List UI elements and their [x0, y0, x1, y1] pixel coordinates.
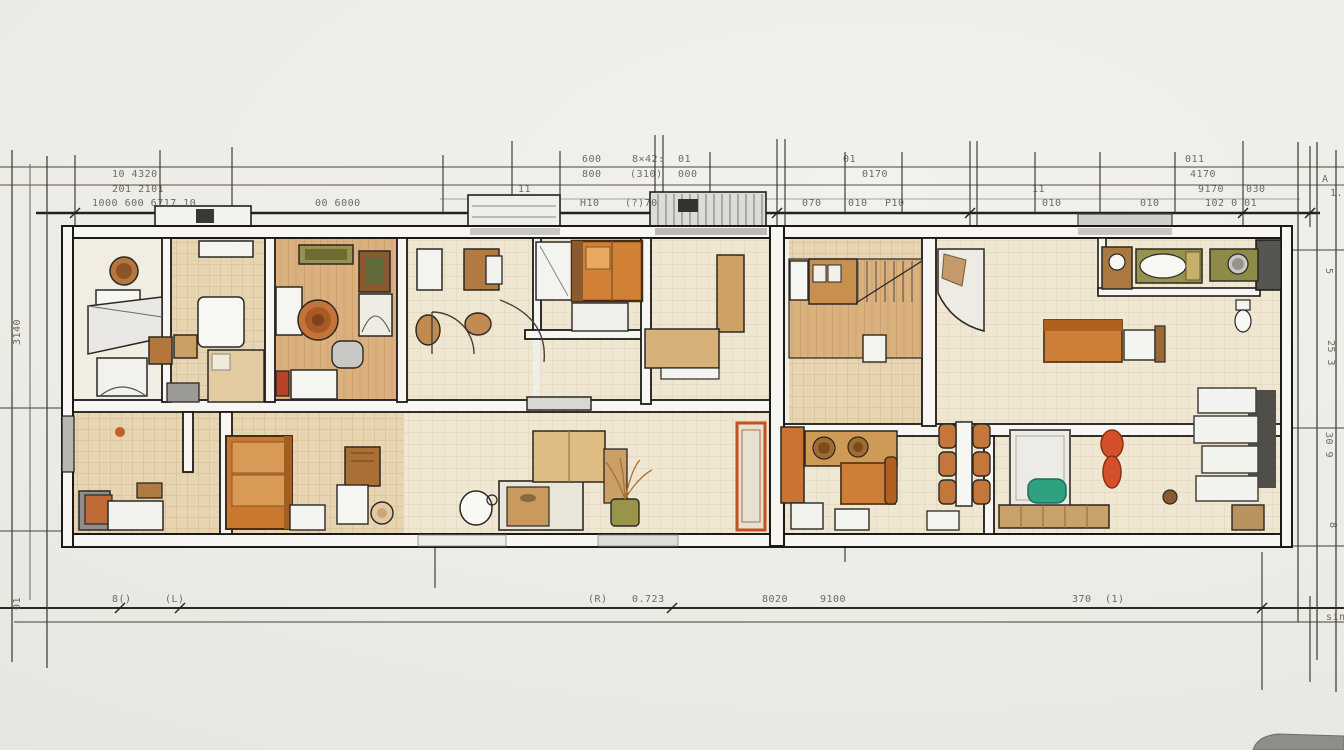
side-table-white	[835, 509, 869, 530]
dimension-label: 0170	[862, 169, 888, 180]
wardrobe-tan	[717, 255, 744, 332]
corner-gray-blob	[1253, 734, 1344, 750]
dimension-label: 8	[1327, 522, 1338, 529]
dimension-label: 9170	[1198, 184, 1224, 195]
gray-corner-piece	[167, 383, 199, 402]
sofa-side-table	[1124, 330, 1155, 360]
sculpt-chair-bottom	[1103, 456, 1121, 488]
sofa-orange-upper-back	[1044, 320, 1122, 331]
dimension-label: P10	[885, 198, 905, 209]
dimension-label: 600	[582, 154, 602, 165]
dimension-label: 1.	[1330, 188, 1343, 199]
dimension-label: 25 3	[1325, 340, 1336, 366]
dimension-label: 10 4320	[112, 169, 158, 180]
dim-verticals-right	[1298, 142, 1336, 692]
washer-drum-inner	[1232, 258, 1244, 270]
blueprint-canvas: 6008×42:010101110 4320800(310)0000170417…	[0, 0, 1344, 750]
bathtub-lid	[1186, 252, 1200, 280]
white-bed-wood-room	[276, 287, 302, 335]
threshold-2	[598, 535, 678, 546]
dimension-label: 5	[1323, 268, 1334, 275]
sofa-end-wood	[1155, 326, 1165, 362]
dimension-label: 11	[518, 184, 531, 195]
door-mark-top-left	[196, 209, 214, 223]
dimension-label: 070	[802, 198, 822, 209]
teal-cushion	[1028, 479, 1066, 503]
wall-v3	[397, 238, 407, 402]
wall-left	[62, 226, 73, 547]
canister-white	[863, 335, 886, 362]
dimension-label: 4170	[1190, 169, 1216, 180]
wall-lower-v1	[183, 412, 193, 472]
dimension-label: (1)	[1105, 594, 1125, 605]
sofa-small-arm	[885, 457, 897, 504]
dimension-label: H10	[580, 198, 600, 209]
ottoman-white	[290, 505, 325, 530]
white-unit	[337, 485, 368, 524]
shelf-bedroom	[199, 241, 253, 257]
dining-chair-1	[939, 424, 956, 448]
orange-dot	[115, 427, 125, 437]
dimension-label: (?)70	[625, 198, 658, 209]
plant-pot	[611, 499, 639, 526]
dimension-label: 201 2101	[112, 184, 164, 195]
dimension-label: 11	[1032, 184, 1045, 195]
hall-closet-white	[417, 249, 442, 290]
wicker-basket-inner	[116, 263, 132, 279]
dimension-label: 01	[678, 154, 691, 165]
dining-chair-3	[939, 480, 956, 504]
dimension-label: 3140	[12, 319, 23, 345]
wall-v2	[265, 238, 275, 402]
coffee-table-small	[137, 483, 162, 498]
dimension-label: (310)	[630, 169, 663, 180]
bath-sink	[1109, 254, 1125, 270]
mug-white	[460, 491, 492, 525]
dimension-label: 8×42:	[632, 154, 665, 165]
round-rug-core	[312, 314, 324, 326]
stove-door-1	[813, 265, 826, 282]
dimension-label: 8()	[112, 594, 132, 605]
footstool-white	[791, 503, 823, 529]
window-left-lower	[62, 416, 74, 472]
dimension-label: 102 0 01	[1205, 198, 1257, 209]
bed-tan-pillow	[212, 354, 230, 370]
dining-chair-4	[973, 424, 990, 448]
arch-niche	[359, 294, 392, 336]
bathtub-basin	[1140, 254, 1186, 278]
dresser-orange	[149, 337, 172, 364]
basket-1-inner	[818, 442, 830, 454]
bed-orange-headboard	[572, 241, 583, 301]
shelf-base-wood	[1232, 505, 1264, 530]
dimension-label: (L)	[165, 594, 185, 605]
threshold-1	[418, 535, 506, 546]
dimension-label: 030	[1246, 184, 1266, 195]
shelf-tier-4	[1196, 476, 1258, 501]
dining-chair-2	[939, 452, 956, 476]
dimension-label: (R)	[588, 594, 608, 605]
dim-ticks-bottom	[435, 546, 1310, 690]
wall-right	[1281, 226, 1292, 547]
dining-chair-5	[973, 452, 990, 476]
wall-dark-corner	[1256, 240, 1281, 290]
wall-v6	[922, 238, 936, 426]
window-planter-inner	[305, 249, 347, 260]
toilet-tank	[1236, 300, 1250, 310]
basket-2-inner	[853, 442, 863, 452]
shelf-tier-1	[1198, 388, 1256, 413]
hatched-porch	[650, 192, 766, 228]
dimension-label: 8020	[762, 594, 788, 605]
dimension-label: sin	[1326, 612, 1344, 623]
toilet-bowl	[1235, 310, 1251, 332]
sofa-cushion-2	[232, 475, 286, 506]
counter-tan	[645, 329, 719, 368]
wall-frame-art	[527, 397, 591, 410]
shelf-tier-2	[1194, 416, 1258, 443]
red-item	[276, 371, 289, 396]
dim-horiz-left	[0, 408, 62, 531]
wall-v1	[162, 238, 171, 402]
shelf-tier-3	[1202, 446, 1258, 473]
dining-table	[956, 422, 972, 506]
bed-orange-pillow	[586, 247, 610, 269]
window-strip-3	[1078, 228, 1172, 235]
bench-wood	[999, 505, 1109, 528]
dimension-label: 00 6000	[315, 198, 361, 209]
dimension-label: 01	[12, 597, 23, 610]
dimension-label: 010	[848, 198, 868, 209]
fridge-white	[790, 261, 808, 300]
wicker-stool-hall	[465, 313, 491, 335]
dimension-label: 010	[1140, 198, 1160, 209]
leaning-art-frame	[737, 423, 765, 530]
dimension-label: 370	[1072, 594, 1092, 605]
dimension-label: 0.723	[632, 594, 665, 605]
floor-plan-drawing: 6008×42:010101110 4320800(310)0000170417…	[0, 0, 1344, 750]
dimension-label: 1000 600 6717 10	[92, 198, 196, 209]
white-bed-lower	[291, 370, 337, 399]
cabinet-wood-door	[507, 487, 549, 526]
vestibule-box	[468, 195, 560, 228]
sofa-cushion-1	[232, 442, 286, 473]
bed-step-white	[572, 303, 628, 331]
dining-white-piece	[927, 511, 959, 530]
sofa-white-l	[108, 501, 163, 530]
counter-shelf-white	[661, 368, 719, 379]
dimension-label: 000	[678, 169, 698, 180]
knob-brown	[1163, 490, 1177, 504]
dining-chair-6	[973, 480, 990, 504]
white-chair-bathroom	[97, 358, 147, 396]
dimension-label: 800	[582, 169, 602, 180]
stove-door-2	[828, 265, 841, 282]
white-table-bedroom	[198, 297, 244, 347]
dimension-label: 011	[1185, 154, 1205, 165]
dimension-label: A	[1322, 174, 1329, 185]
gray-curved-seat	[332, 341, 363, 368]
dimension-label: 010	[1042, 198, 1062, 209]
dimension-label: 9100	[820, 594, 846, 605]
hall-white-piece	[486, 256, 502, 284]
tall-cabinet-olive-inner	[365, 257, 384, 284]
bread-basket-inner	[377, 508, 387, 518]
sculpt-chair-top	[1101, 430, 1123, 458]
nightstand-wood	[174, 335, 197, 358]
porch-door-mark	[678, 199, 698, 212]
dimension-label: 01	[843, 154, 856, 165]
cabinet-handle	[520, 494, 536, 502]
dimension-label: 30 9	[1323, 432, 1334, 458]
window-strip-1	[470, 228, 560, 235]
armchair-orange-tall	[781, 427, 804, 503]
wicker-basket-hall	[416, 315, 440, 345]
window-strip-2	[655, 228, 767, 235]
